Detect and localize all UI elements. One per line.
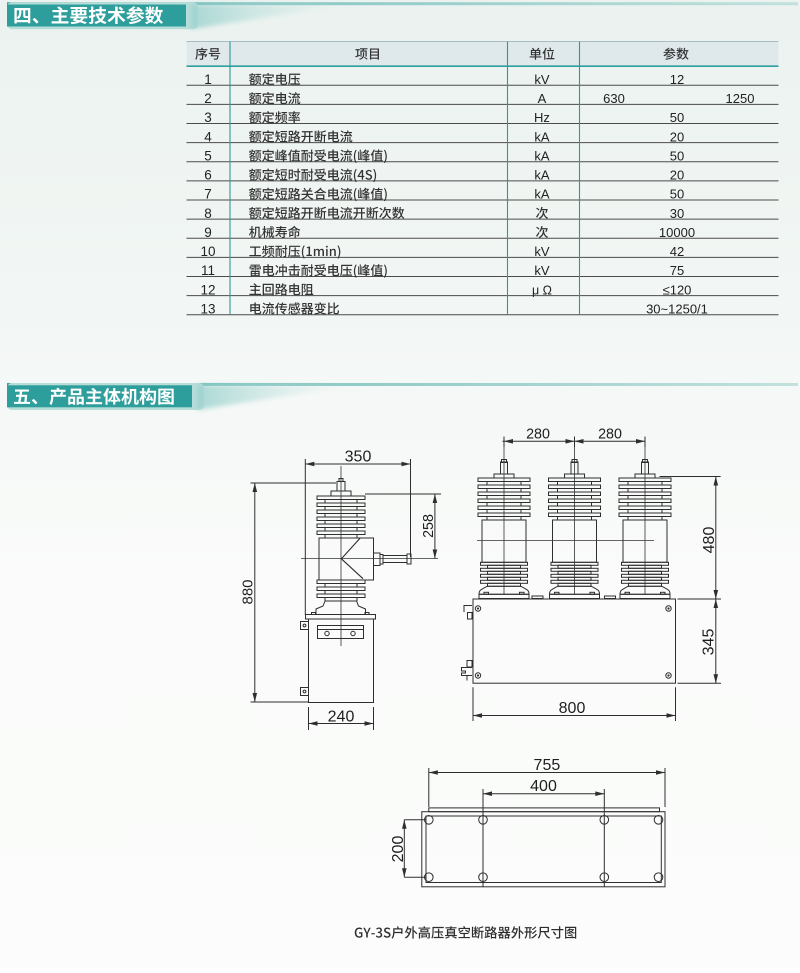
svg-text:9: 9 — [204, 225, 212, 240]
svg-text:20: 20 — [670, 168, 684, 183]
svg-text:Hz: Hz — [534, 110, 550, 125]
svg-text:13: 13 — [200, 301, 215, 316]
svg-text:6: 6 — [204, 168, 212, 183]
svg-text:20: 20 — [670, 129, 684, 144]
svg-text:μ Ω: μ Ω — [532, 283, 552, 297]
svg-text:A: A — [538, 91, 547, 106]
svg-text:800: 800 — [559, 700, 586, 717]
svg-text:30: 30 — [670, 206, 684, 221]
svg-text:kA: kA — [534, 149, 550, 164]
svg-text:kA: kA — [534, 187, 550, 202]
svg-text:kA: kA — [534, 129, 550, 144]
svg-text:400: 400 — [530, 778, 557, 795]
svg-text:50: 50 — [670, 110, 684, 125]
svg-text:4: 4 — [204, 129, 212, 144]
svg-text:1250: 1250 — [726, 91, 755, 106]
svg-text:350: 350 — [345, 449, 372, 466]
svg-text:258: 258 — [421, 514, 437, 538]
svg-text:2: 2 — [204, 91, 212, 106]
svg-text:240: 240 — [328, 709, 355, 726]
svg-text:5: 5 — [204, 149, 212, 164]
svg-text:kV: kV — [534, 263, 550, 278]
svg-text:30~1250/1: 30~1250/1 — [646, 301, 708, 316]
svg-text:≤120: ≤120 — [663, 282, 692, 297]
svg-text:3: 3 — [204, 110, 212, 125]
svg-text:1: 1 — [204, 72, 212, 87]
svg-text:10: 10 — [200, 244, 215, 259]
svg-text:kA: kA — [534, 168, 550, 183]
svg-text:12: 12 — [200, 282, 215, 297]
svg-text:755: 755 — [534, 757, 561, 774]
svg-text:11: 11 — [201, 263, 215, 278]
svg-text:480: 480 — [701, 527, 718, 554]
svg-text:8: 8 — [204, 206, 212, 221]
svg-text:50: 50 — [670, 149, 684, 164]
svg-text:kV: kV — [534, 72, 550, 87]
svg-text:10000: 10000 — [659, 225, 695, 240]
svg-text:kV: kV — [534, 244, 550, 259]
svg-text:12: 12 — [670, 72, 684, 87]
svg-text:880: 880 — [240, 579, 257, 604]
svg-text:42: 42 — [670, 244, 684, 259]
svg-text:345: 345 — [701, 629, 718, 656]
svg-text:280: 280 — [598, 427, 622, 443]
svg-text:200: 200 — [390, 836, 407, 863]
svg-text:630: 630 — [603, 91, 625, 106]
svg-text:75: 75 — [670, 263, 684, 278]
svg-text:7: 7 — [204, 187, 212, 202]
svg-text:280: 280 — [526, 427, 550, 443]
svg-text:50: 50 — [670, 187, 684, 202]
